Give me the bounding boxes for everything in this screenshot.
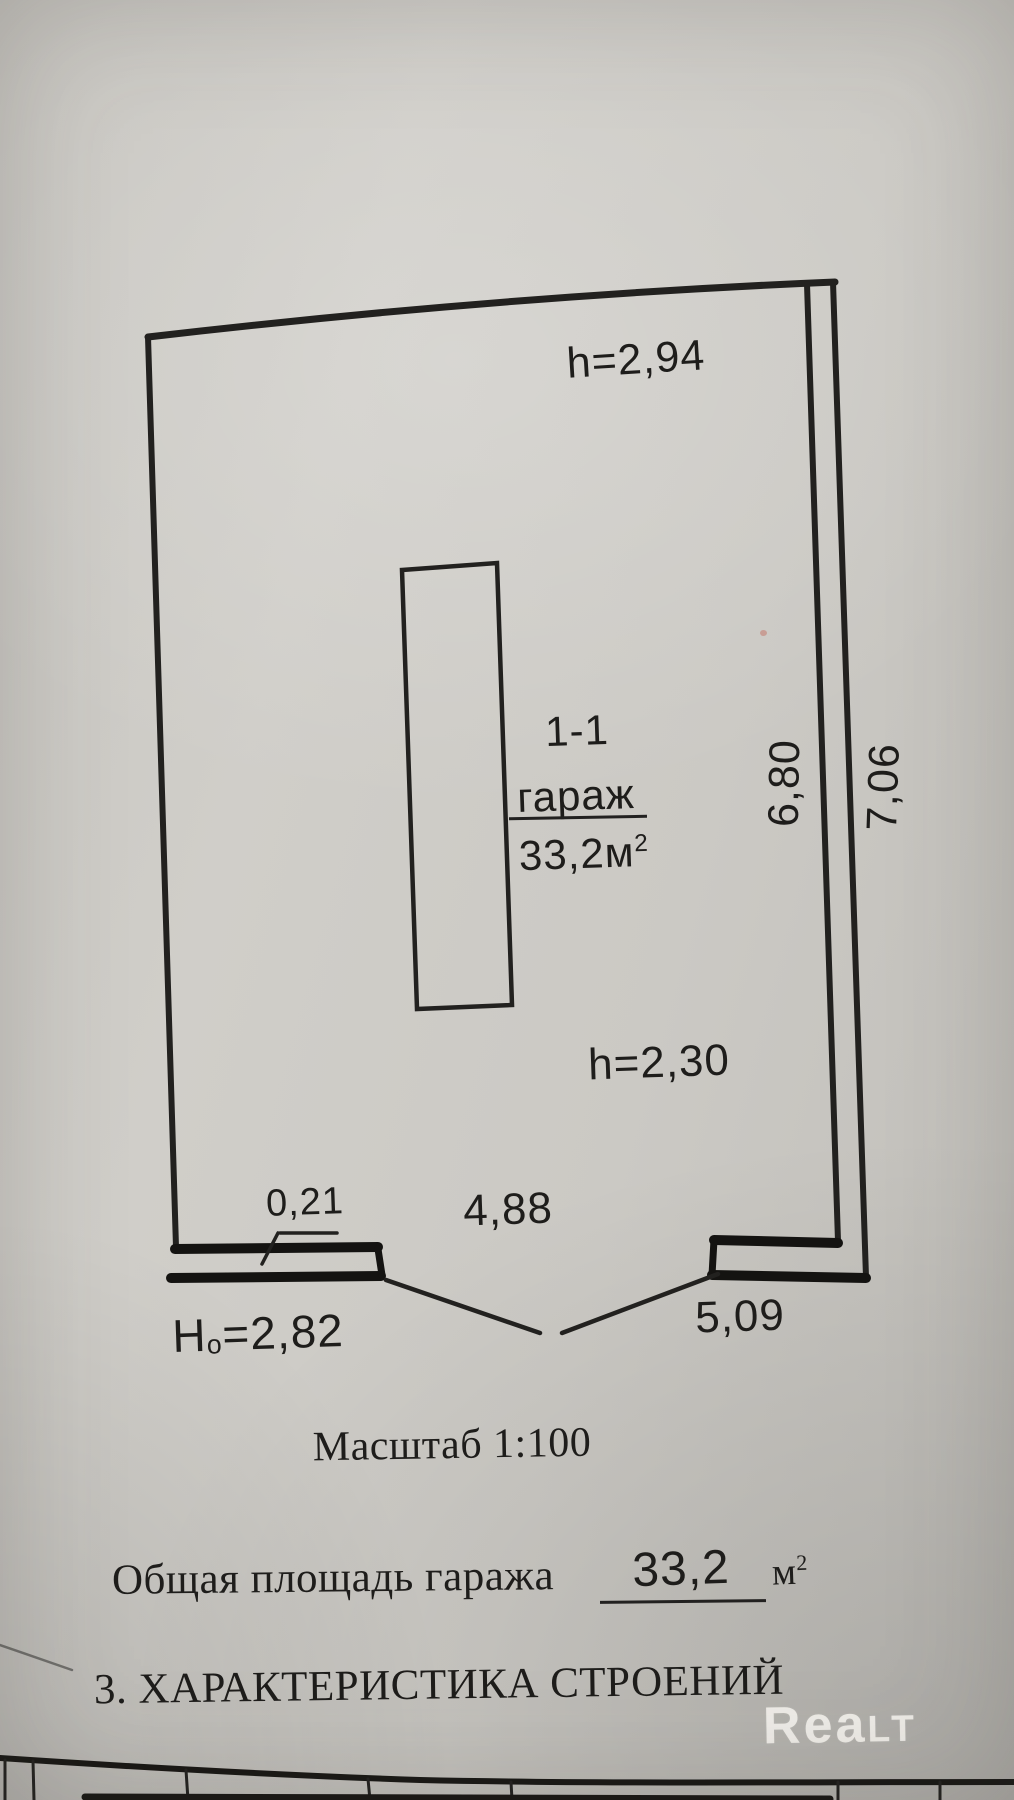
total-area-label: Общая площадь гаража [112, 1551, 555, 1605]
dim-inner-width: 4,88 [462, 1183, 553, 1236]
room-number: 1-1 [544, 706, 609, 756]
page-crease [0, 1645, 72, 1670]
paper-blemish [760, 630, 767, 636]
scale-note: Масштаб 1:100 [312, 1419, 591, 1472]
table-top-border [0, 1758, 1014, 1783]
dim-outer-length: 7,06 [858, 742, 910, 831]
dim-outer-width: 5,09 [694, 1290, 785, 1343]
table-row-line [85, 1797, 830, 1799]
realt-watermark-main: Rea [763, 1696, 868, 1756]
gate-height-prefix: H [171, 1309, 207, 1362]
room-area: 33,2м2 [518, 828, 650, 881]
total-area-unit-letter: м [771, 1551, 797, 1594]
front-wall-left-top [175, 1247, 378, 1249]
wall-top [148, 282, 835, 337]
dim-ceiling-height-low: h=2,30 [587, 1036, 730, 1091]
gate-door-left [386, 1280, 540, 1333]
realt-watermark: ReaLT [762, 1694, 918, 1757]
gate-height-sub: о [206, 1329, 223, 1360]
front-wall-left-end [378, 1249, 382, 1275]
inspection-pit [402, 563, 512, 1009]
room-area-value: 33,2м [518, 828, 635, 879]
scanned-floor-plan-page: h=2,94 1-1 гараж 33,2м2 6,80 7,06 h=2,30… [0, 0, 1014, 1800]
room-name: гараж [516, 770, 635, 822]
dim-gate-height: Hо=2,82 [171, 1303, 344, 1363]
dim-ceiling-height-main: h=2,94 [565, 331, 706, 388]
wall-left [148, 337, 176, 1247]
floor-plan-drawing [0, 0, 1014, 1800]
realt-watermark-caps: LT [867, 1708, 918, 1750]
dim-wall-thickness: 0,21 [265, 1180, 344, 1226]
gate-height-value: =2,82 [221, 1304, 344, 1360]
wall-right-inner [807, 284, 838, 1241]
total-area-unit-sup: 2 [796, 1550, 808, 1575]
front-wall-right-end [712, 1240, 714, 1275]
front-wall-right-top [714, 1240, 838, 1243]
total-area-value: 33,2 [631, 1540, 730, 1598]
table-divider-2 [33, 1761, 34, 1800]
front-wall-left-bottom [171, 1276, 381, 1278]
front-wall-right-bottom [712, 1275, 866, 1278]
total-area-unit: м2 [771, 1549, 809, 1594]
dim-inner-length: 6,80 [760, 739, 811, 828]
section-heading: 3. ХАРАКТЕРИСТИКА СТРОЕНИЙ [94, 1656, 785, 1715]
room-area-sup: 2 [634, 830, 649, 857]
